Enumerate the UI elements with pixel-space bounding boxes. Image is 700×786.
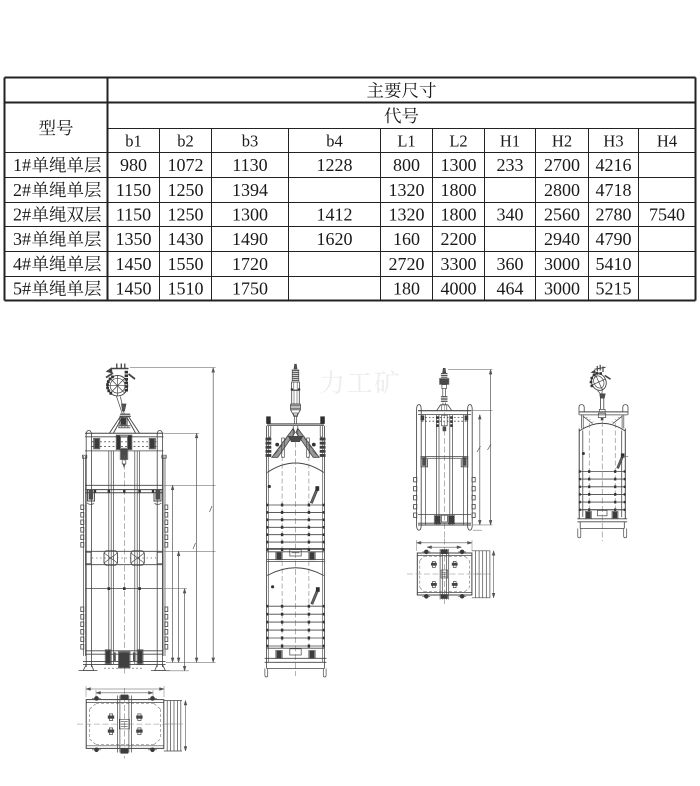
svg-text:1320: 1320: [389, 180, 425, 200]
svg-text:1430: 1430: [168, 229, 204, 249]
svg-text:1130: 1130: [232, 155, 267, 175]
svg-text:H2: H2: [552, 131, 572, 150]
svg-text:2940: 2940: [544, 229, 580, 249]
svg-text:3000: 3000: [544, 254, 580, 274]
svg-text:1720: 1720: [232, 254, 268, 274]
svg-text:5215: 5215: [596, 279, 632, 299]
svg-text:1072: 1072: [168, 155, 204, 175]
svg-text:3#: 3#: [13, 229, 31, 249]
svg-text:2780: 2780: [596, 204, 632, 224]
svg-text:1300: 1300: [441, 155, 477, 175]
svg-text:H1: H1: [500, 131, 520, 150]
svg-text:1#: 1#: [13, 155, 31, 175]
svg-text:1250: 1250: [168, 204, 204, 224]
svg-text:1510: 1510: [168, 279, 204, 299]
svg-text:1394: 1394: [232, 180, 268, 200]
svg-text:1490: 1490: [232, 229, 268, 249]
svg-text:1550: 1550: [168, 254, 204, 274]
svg-text:1450: 1450: [116, 254, 152, 274]
svg-text:2#: 2#: [13, 204, 31, 224]
svg-text:4#: 4#: [13, 254, 31, 274]
svg-text:3000: 3000: [544, 279, 580, 299]
svg-text:H4: H4: [657, 131, 677, 150]
svg-text:1412: 1412: [317, 204, 353, 224]
svg-text:L2: L2: [449, 131, 467, 150]
svg-text:b1: b1: [125, 131, 142, 150]
svg-text:340: 340: [497, 204, 524, 224]
svg-text:1150: 1150: [116, 180, 151, 200]
svg-text:2560: 2560: [544, 204, 580, 224]
svg-text:2700: 2700: [544, 155, 580, 175]
svg-text:2720: 2720: [389, 254, 425, 274]
svg-text:H3: H3: [603, 131, 623, 150]
svg-text:160: 160: [393, 229, 420, 249]
svg-text:1750: 1750: [232, 279, 268, 299]
svg-text:1300: 1300: [232, 204, 268, 224]
svg-text:1800: 1800: [441, 204, 477, 224]
svg-text:980: 980: [120, 155, 147, 175]
svg-text:4000: 4000: [441, 279, 477, 299]
svg-text:1320: 1320: [389, 204, 425, 224]
svg-text:4216: 4216: [596, 155, 632, 175]
svg-text:464: 464: [497, 279, 524, 299]
svg-text:180: 180: [393, 279, 420, 299]
svg-text:1150: 1150: [116, 204, 151, 224]
svg-text:800: 800: [393, 155, 420, 175]
svg-text:5#: 5#: [13, 279, 31, 299]
svg-text:1620: 1620: [317, 229, 353, 249]
svg-text:2800: 2800: [544, 180, 580, 200]
svg-text:3300: 3300: [441, 254, 477, 274]
svg-text:4790: 4790: [596, 229, 632, 249]
svg-text:1228: 1228: [317, 155, 353, 175]
svg-text:7540: 7540: [649, 204, 685, 224]
svg-text:b3: b3: [242, 131, 259, 150]
svg-text:1800: 1800: [441, 180, 477, 200]
svg-text:1450: 1450: [116, 279, 152, 299]
svg-text:4718: 4718: [596, 180, 632, 200]
svg-text:2#: 2#: [13, 180, 31, 200]
svg-text:233: 233: [497, 155, 524, 175]
svg-text:b2: b2: [177, 131, 194, 150]
svg-text:360: 360: [497, 254, 524, 274]
svg-text:1350: 1350: [116, 229, 152, 249]
svg-text:b4: b4: [326, 131, 343, 150]
svg-text:1250: 1250: [168, 180, 204, 200]
svg-text:2200: 2200: [441, 229, 477, 249]
svg-text:5410: 5410: [596, 254, 632, 274]
svg-text:L1: L1: [397, 131, 415, 150]
